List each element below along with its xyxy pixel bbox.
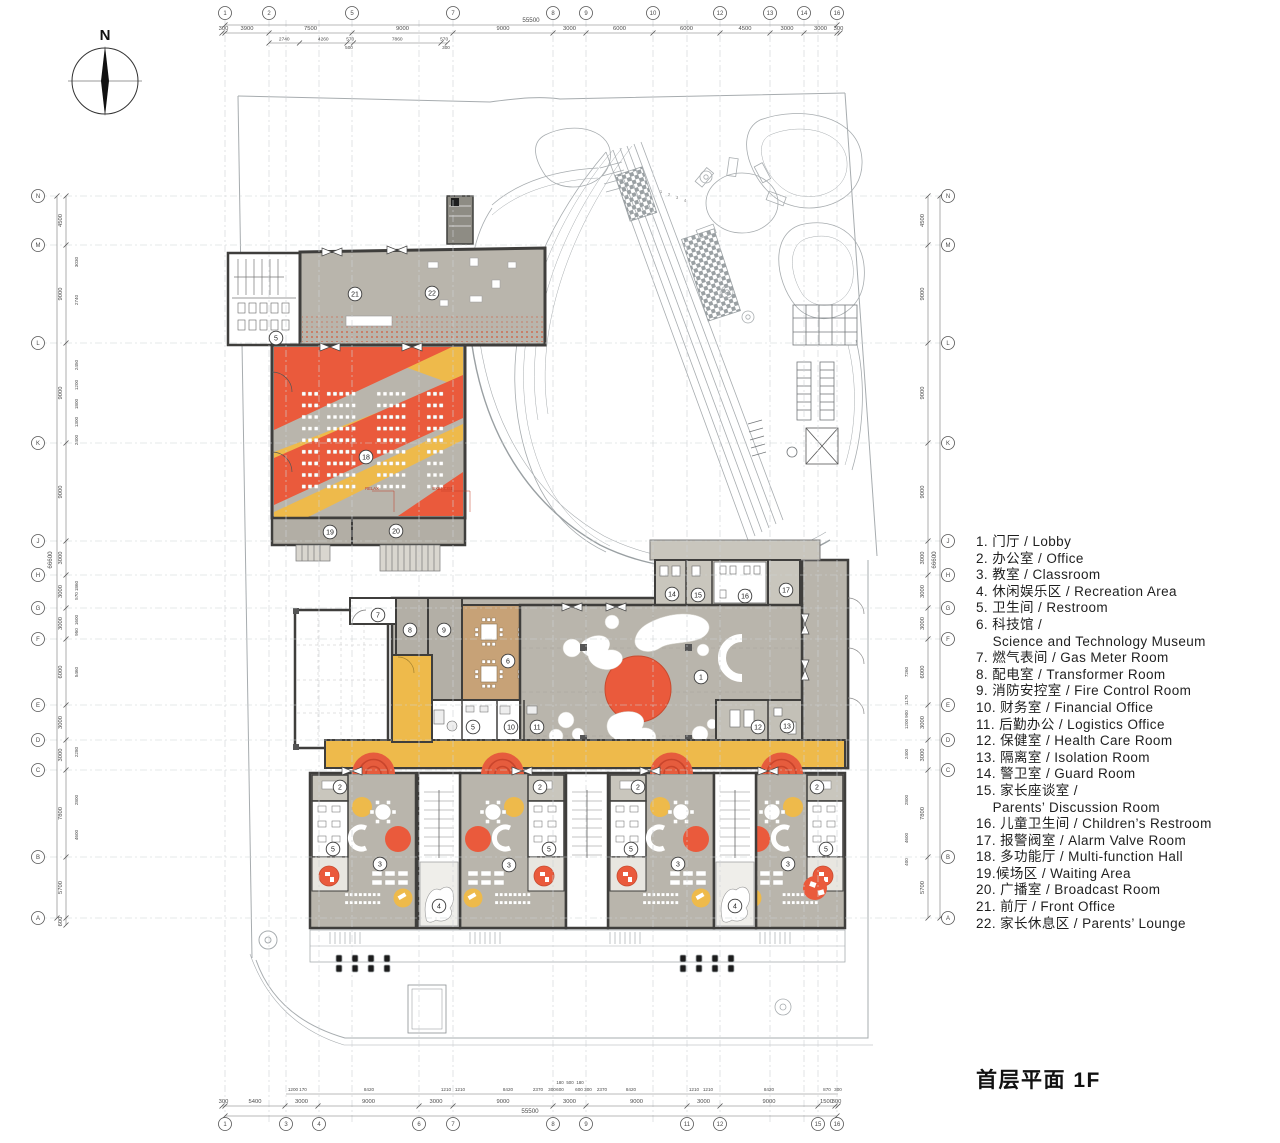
dimension-label: 4600: [904, 832, 909, 843]
dimension-label: 4600: [74, 829, 79, 840]
bench-block: [336, 965, 342, 972]
stage-label: RELAX: [365, 486, 379, 491]
legend-item: Science and Technology Museum: [976, 634, 1212, 651]
hall-seat: [383, 392, 387, 396]
dimension-label: 4500: [739, 26, 752, 32]
small-chair: [527, 901, 530, 904]
bench-block: [352, 965, 358, 972]
science-chair: [487, 618, 490, 621]
wc-fixture: [813, 836, 821, 842]
flower-table: [375, 804, 391, 820]
dimension-label: 8420: [503, 1087, 514, 1092]
work-table: [760, 871, 770, 876]
dimension-label: 3000: [563, 26, 576, 32]
dimension-label: 5400: [249, 1099, 262, 1105]
room-number: 19: [326, 529, 334, 536]
wc-fixture: [332, 821, 340, 827]
yellow-circle: [504, 797, 524, 817]
hall-seat: [327, 462, 331, 466]
room-number: 3: [786, 861, 790, 868]
hall-seat: [433, 415, 437, 419]
small-chair: [643, 893, 646, 896]
small-chair: [500, 901, 503, 904]
small-chair: [523, 901, 526, 904]
hall-seat: [339, 392, 343, 396]
grid-bubble-left-label: B: [36, 855, 40, 861]
small-chair: [801, 901, 804, 904]
dimension-label: 3000: [920, 617, 926, 630]
grid-bubble-left-label: D: [36, 738, 41, 744]
room-number: 2: [538, 784, 542, 791]
grid-bubble-left-label: J: [37, 539, 40, 545]
flower-chair: [392, 810, 396, 814]
room-number: 21: [351, 291, 359, 298]
grid-bubble-bottom-label: 16: [834, 1122, 841, 1128]
dimension-label: 180: [556, 1080, 564, 1085]
hall-seat: [377, 438, 381, 442]
hall-seat: [396, 473, 400, 477]
annex-block: [228, 253, 302, 345]
rug-item: [623, 872, 628, 876]
work-table: [683, 871, 693, 876]
dimension-label: 4500: [58, 214, 64, 227]
dimension-label: 3000: [563, 1099, 576, 1105]
track-lane-number: 4: [684, 198, 687, 203]
hall-seat: [377, 427, 381, 431]
hall-seat: [396, 485, 400, 489]
dimension-label: 1210: [441, 1087, 452, 1092]
flower-chair: [759, 810, 763, 814]
legend-item: Parents’ Discussion Room: [976, 800, 1212, 817]
rug-item: [330, 877, 334, 882]
dimension-label: 5700: [920, 881, 926, 894]
wc-fixture: [616, 836, 624, 842]
total-dimension: 66600: [47, 551, 54, 569]
hall-seat: [333, 450, 337, 454]
small-chair: [652, 893, 655, 896]
work-table: [773, 871, 783, 876]
hall-seat: [439, 392, 443, 396]
grid-bubble-left-label: H: [36, 573, 40, 579]
hall-seat: [402, 427, 406, 431]
grid-bubble-top-label: 16: [834, 11, 841, 17]
wc-fixture: [282, 320, 289, 330]
hall-seat: [339, 427, 343, 431]
front-office-hall: [300, 248, 545, 345]
hall-seat: [439, 462, 443, 466]
orange-circle: [385, 826, 411, 852]
small-chair: [666, 893, 669, 896]
room-number: 2: [815, 784, 819, 791]
wc-fixture: [282, 303, 289, 313]
hall-seat: [402, 462, 406, 466]
grid-bubble-right-label: M: [946, 243, 951, 249]
dimension-label: 600: [575, 1087, 583, 1092]
grid-bubble-right-label: D: [946, 738, 951, 744]
room-number: 16: [741, 593, 749, 600]
orange-circle: [465, 826, 491, 852]
room-number: 4: [437, 903, 441, 910]
work-table: [468, 871, 478, 876]
wc-fixture: [548, 806, 556, 812]
dimension-label: 3000: [295, 1099, 308, 1105]
small-chair: [368, 893, 371, 896]
small-chair: [354, 893, 357, 896]
hall-seat: [383, 438, 387, 442]
room-number: 14: [668, 591, 676, 598]
stage-label: EXERCISE: [432, 486, 453, 491]
bench-block: [712, 955, 718, 962]
dimension-label: 1200: [288, 1087, 299, 1092]
wc-fixture: [630, 836, 638, 842]
flower-chair: [685, 820, 689, 824]
grid-bubble-right-label: A: [946, 916, 950, 922]
track-lane-number: 1: [660, 189, 663, 194]
small-chair: [671, 901, 674, 904]
dimension-label: 1800: [74, 398, 79, 409]
small-chair: [810, 901, 813, 904]
science-chair: [492, 643, 495, 646]
dimension-label: 1170: [904, 695, 909, 705]
small-chair: [796, 901, 799, 904]
hall-seat: [346, 415, 350, 419]
hall-seat: [346, 450, 350, 454]
work-table: [372, 871, 382, 876]
classroom-unit: [310, 753, 416, 929]
science-chair: [500, 670, 503, 673]
flower-chair: [776, 820, 780, 824]
dimension-label: 3000: [920, 585, 926, 598]
flower-chair: [480, 810, 484, 814]
wc-fixture: [271, 320, 278, 330]
legend-item: 12. 保健室 / Health Care Room: [976, 733, 1212, 750]
hall-seat: [439, 415, 443, 419]
hall-seat: [439, 438, 443, 442]
hall-seat: [346, 392, 350, 396]
dimension-label: 7800: [58, 807, 64, 820]
hall-seat: [439, 427, 443, 431]
grid-bubble-top-label: 13: [767, 11, 774, 17]
hall-seat: [314, 415, 318, 419]
hall-seat: [327, 438, 331, 442]
dimension-label: 6000: [680, 26, 693, 32]
small-chair: [648, 893, 651, 896]
small-chair: [796, 893, 799, 896]
dimension-label: 9000: [58, 387, 64, 400]
bench-block: [352, 955, 358, 962]
flower-chair: [497, 800, 501, 804]
hall-seat: [389, 473, 393, 477]
bench-block: [712, 965, 718, 972]
science-chair: [487, 660, 490, 663]
hall-seat: [377, 404, 381, 408]
grid-bubble-right-label: B: [946, 855, 950, 861]
hall-seat: [308, 438, 312, 442]
work-table: [398, 871, 408, 876]
hall-seat: [352, 415, 356, 419]
legend-item: 19.候场区 / Waiting Area: [976, 866, 1212, 883]
grid-bubble-left-label: M: [36, 243, 41, 249]
dimension-label: 570: [74, 592, 79, 600]
small-chair: [363, 893, 366, 896]
buildings: RELAXEXERCISE1234: [228, 189, 864, 1033]
dimension-label: 2370: [597, 1087, 608, 1092]
grid-bubble-bottom-label: 11: [684, 1122, 691, 1128]
dimension-label: 2740: [279, 37, 290, 43]
hall-seat: [302, 392, 306, 396]
grid-bubble-left-label: C: [36, 768, 41, 774]
hall-seat: [302, 438, 306, 442]
dimension-label: 4500: [920, 214, 926, 227]
small-chair: [657, 893, 660, 896]
dimension-label: 6000: [613, 26, 626, 32]
dimension-label: 570: [346, 37, 354, 43]
hall-seat: [389, 462, 393, 466]
grid-bubble-left-label: A: [36, 916, 40, 922]
dimension-label: 300: [832, 1099, 842, 1105]
small-chair: [648, 901, 651, 904]
hall-seat: [396, 427, 400, 431]
bench-block: [696, 955, 702, 962]
grid-bubble-right-label: E: [946, 703, 950, 709]
science-chair: [475, 628, 478, 631]
small-chair: [787, 901, 790, 904]
room-number: 17: [782, 587, 790, 594]
room-number: 13: [783, 723, 791, 730]
legend-item: 9. 消防安控室 / Fire Control Room: [976, 683, 1212, 700]
dimension-label: 7260: [904, 666, 909, 677]
dimension-label: 9000: [920, 387, 926, 400]
dimension-label: 3000: [920, 716, 926, 729]
legend-item: 8. 配电室 / Transformer Room: [976, 667, 1212, 684]
dimension-label: 1210: [689, 1087, 700, 1092]
hall-seat: [396, 415, 400, 419]
small-chair: [783, 893, 786, 896]
wc-fixture: [827, 806, 835, 812]
hall-seat: [346, 404, 350, 408]
small-chair: [377, 893, 380, 896]
hall-seat: [302, 427, 306, 431]
wc-fixture: [548, 821, 556, 827]
right-wing: [802, 560, 848, 768]
room-number: 6: [506, 658, 510, 665]
hall-seat: [377, 415, 381, 419]
legend-item: 20. 广播室 / Broadcast Room: [976, 882, 1212, 899]
room-number: 8: [408, 627, 412, 634]
small-chair: [643, 901, 646, 904]
hall-seat: [346, 485, 350, 489]
dimension-label: 9000: [58, 486, 64, 499]
flower-chair: [486, 820, 490, 824]
wc-fixture: [534, 821, 542, 827]
dimension-label: 9000: [763, 1099, 776, 1105]
room-number: 22: [428, 290, 436, 297]
hall-seat: [389, 427, 393, 431]
hall-seat: [402, 404, 406, 408]
floor-plan-page: { "page": { "title": "首层平面 1F", "north_l…: [0, 0, 1280, 1143]
dimension-label: 9000: [497, 1099, 510, 1105]
stair-core: [566, 773, 608, 928]
legend-item: 5. 卫生间 / Restroom: [976, 600, 1212, 617]
work-table: [696, 871, 706, 876]
science-chair: [487, 643, 490, 646]
bench-block: [728, 965, 734, 972]
hall-seat: [427, 427, 431, 431]
hall-seat: [333, 415, 337, 419]
grid-bubble-right-label: F: [946, 637, 950, 643]
wc-fixture: [238, 320, 245, 330]
hall-seat: [433, 427, 437, 431]
hall-seat: [352, 404, 356, 408]
hall-seat: [346, 438, 350, 442]
hall-seat: [427, 438, 431, 442]
dimension-label: 500: [566, 1080, 574, 1085]
work-table: [494, 871, 504, 876]
bench-block: [368, 955, 374, 962]
science-chair: [482, 660, 485, 663]
dimension-label: 600: [58, 917, 64, 927]
hall-seat: [383, 427, 387, 431]
hall-seat: [402, 485, 406, 489]
dimension-label: 3000: [430, 1099, 443, 1105]
dimension-label: 3000: [58, 552, 64, 565]
science-chair: [492, 660, 495, 663]
legend-item: 16. 儿童卫生间 / Children’s Restroom: [976, 816, 1212, 833]
entry-canopy: [650, 540, 820, 560]
science-chair: [482, 685, 485, 688]
grid-bubble-right-label: K: [946, 441, 950, 447]
dimension-label: 300: [548, 1087, 556, 1092]
hall-seat: [383, 473, 387, 477]
hall-seat: [427, 450, 431, 454]
hall-seat: [314, 450, 318, 454]
hall-seat: [327, 392, 331, 396]
dimension-label: 7860: [392, 37, 403, 43]
dimension-label: 9000: [497, 26, 510, 32]
science-chair: [475, 675, 478, 678]
legend-item: 6. 科技馆 /: [976, 617, 1212, 634]
dimension-label: 3000: [58, 716, 64, 729]
small-chair: [675, 901, 678, 904]
work-table: [670, 880, 680, 885]
flower-chair: [668, 810, 672, 814]
hall-seat: [327, 415, 331, 419]
hall-seat: [383, 485, 387, 489]
dimension-label: 180: [576, 1080, 584, 1085]
dimension-label: 8420: [764, 1087, 775, 1092]
hall-seat: [396, 392, 400, 396]
dimension-label: 9000: [630, 1099, 643, 1105]
hall-seat: [383, 462, 387, 466]
hall-seat: [389, 415, 393, 419]
science-chair: [500, 628, 503, 631]
room-number: 2: [338, 784, 342, 791]
dimension-label: 9000: [920, 288, 926, 301]
north-arrow: N: [68, 27, 142, 116]
small-chair: [359, 893, 362, 896]
classroom-band: [310, 753, 845, 929]
work-table: [398, 880, 408, 885]
small-chair: [518, 893, 521, 896]
grid-bubble-left-label: K: [36, 441, 40, 447]
drawing-title: 首层平面 1F: [976, 1064, 1101, 1094]
science-chair: [482, 618, 485, 621]
grid-bubble-left-label: E: [36, 703, 40, 709]
science-chair: [487, 685, 490, 688]
small-chair: [671, 893, 674, 896]
hall-seat: [314, 438, 318, 442]
dimension-label: 1600: [74, 614, 79, 625]
grid-bubble-bottom-label: 15: [815, 1122, 822, 1128]
small-chair: [368, 901, 371, 904]
room-number: 11: [533, 724, 540, 731]
wc-fixture: [332, 836, 340, 842]
hall-seat: [333, 427, 337, 431]
main-building: [293, 540, 864, 768]
hall-seat: [389, 438, 393, 442]
hall-seat: [396, 450, 400, 454]
dimension-label: 6000: [58, 666, 64, 679]
orange-rug: [803, 876, 827, 900]
small-chair: [373, 893, 376, 896]
legend-item: 21. 前厅 / Front Office: [976, 899, 1212, 916]
work-table: [481, 880, 491, 885]
small-chair: [495, 901, 498, 904]
dimension-label: 1210: [455, 1087, 466, 1092]
hall-seat: [333, 438, 337, 442]
dimension-label: 2400: [74, 434, 79, 445]
small-chair: [652, 901, 655, 904]
hall-seat: [327, 473, 331, 477]
small-chair: [661, 901, 664, 904]
work-table: [696, 880, 706, 885]
hall-seat: [352, 392, 356, 396]
grid-bubble-right-label: G: [946, 606, 951, 612]
hall-seat: [396, 404, 400, 408]
hall-seat: [314, 485, 318, 489]
hall-seat: [377, 450, 381, 454]
room-legend: 1. 门厅 / Lobby2. 办公室 / Office3. 教室 / Clas…: [976, 534, 1212, 932]
dimension-label: 900: [904, 710, 909, 718]
bench-block: [384, 965, 390, 972]
small-chair: [513, 901, 516, 904]
play-equipment: [748, 305, 857, 464]
science-table: [481, 624, 497, 640]
science-chair: [475, 633, 478, 636]
legend-item: 10. 财务室 / Financial Office: [976, 700, 1212, 717]
work-table: [760, 880, 770, 885]
hall-seat: [433, 450, 437, 454]
grid-bubble-left-label: G: [36, 606, 41, 612]
grid-bubble-bottom-label: 12: [717, 1122, 724, 1128]
small-chair: [801, 893, 804, 896]
corridor-arm-yellow: [392, 655, 432, 742]
hall-seat: [389, 392, 393, 396]
sun-feature: [695, 158, 786, 239]
wc-fixture: [616, 806, 624, 812]
small-chair: [666, 901, 669, 904]
small-chair: [500, 893, 503, 896]
rug-item: [628, 877, 632, 882]
wc-fixture: [548, 836, 556, 842]
hall-seat: [427, 485, 431, 489]
room-number: 7: [376, 612, 380, 619]
north-label: N: [100, 27, 111, 44]
dimension-label: 5700: [58, 881, 64, 894]
small-chair: [354, 901, 357, 904]
dimension-label: 3000: [58, 749, 64, 762]
dimension-label: 3000: [58, 617, 64, 630]
